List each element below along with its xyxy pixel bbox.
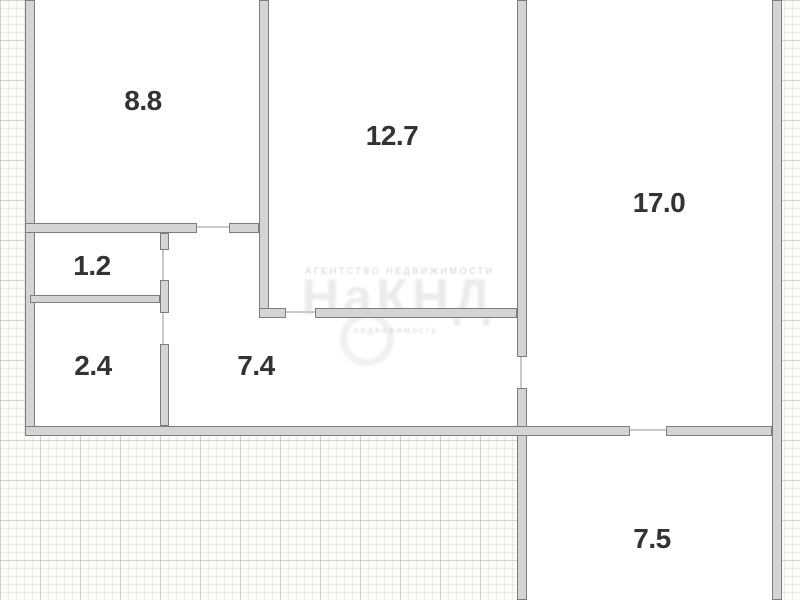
door-opening-room-12-7: [286, 311, 315, 313]
wall-8-8-bottom-right-segment: [229, 223, 259, 233]
room-label-12-7: 12.7: [366, 120, 419, 152]
wall-vestibule-right-stub: [160, 233, 169, 250]
door-opening-storage: [162, 313, 164, 344]
wall-divider-17-0-lower: [517, 388, 527, 600]
floorplan-canvas: АГЕНТСТВО НЕДВИЖИМОСТИ НаКНД недвижимост…: [0, 0, 800, 600]
wall-storage-right-lower: [160, 344, 169, 426]
room-label-8-8: 8.8: [124, 85, 161, 117]
wall-outer-left: [25, 0, 35, 436]
wall-divider-8-8-and-12-7: [259, 0, 269, 318]
wall-8-8-bottom-left-segment: [25, 223, 197, 233]
room-label-7-5: 7.5: [633, 523, 670, 555]
room-label-7-4: 7.4: [237, 350, 274, 382]
room-label-1-2: 1.2: [73, 250, 110, 282]
door-opening-room-8-8: [197, 226, 229, 228]
wall-vestibule-storage-tee: [160, 280, 169, 313]
watermark-bottom-line: недвижимость: [354, 325, 438, 335]
wall-bottom-left-segment: [25, 426, 630, 436]
wall-bottom-right-segment: [666, 426, 772, 436]
room-label-2-4: 2.4: [74, 350, 111, 382]
wall-outer-right: [772, 0, 782, 600]
wall-divider-vestibule-storage: [30, 295, 160, 303]
door-opening-room-17-0: [520, 357, 522, 388]
wall-hallway-top-main: [315, 308, 517, 318]
interior-bottom-right-block: [517, 436, 782, 600]
watermark-logo-circle-icon: [340, 312, 394, 366]
wall-hallway-top-corner: [259, 308, 286, 318]
room-label-17-0: 17.0: [633, 187, 686, 219]
door-opening-vestibule: [162, 250, 164, 280]
door-opening-room-7-5: [630, 429, 666, 431]
wall-divider-12-7-and-17-0-upper: [517, 0, 527, 357]
watermark-logo-text: НаКНД: [302, 268, 495, 328]
